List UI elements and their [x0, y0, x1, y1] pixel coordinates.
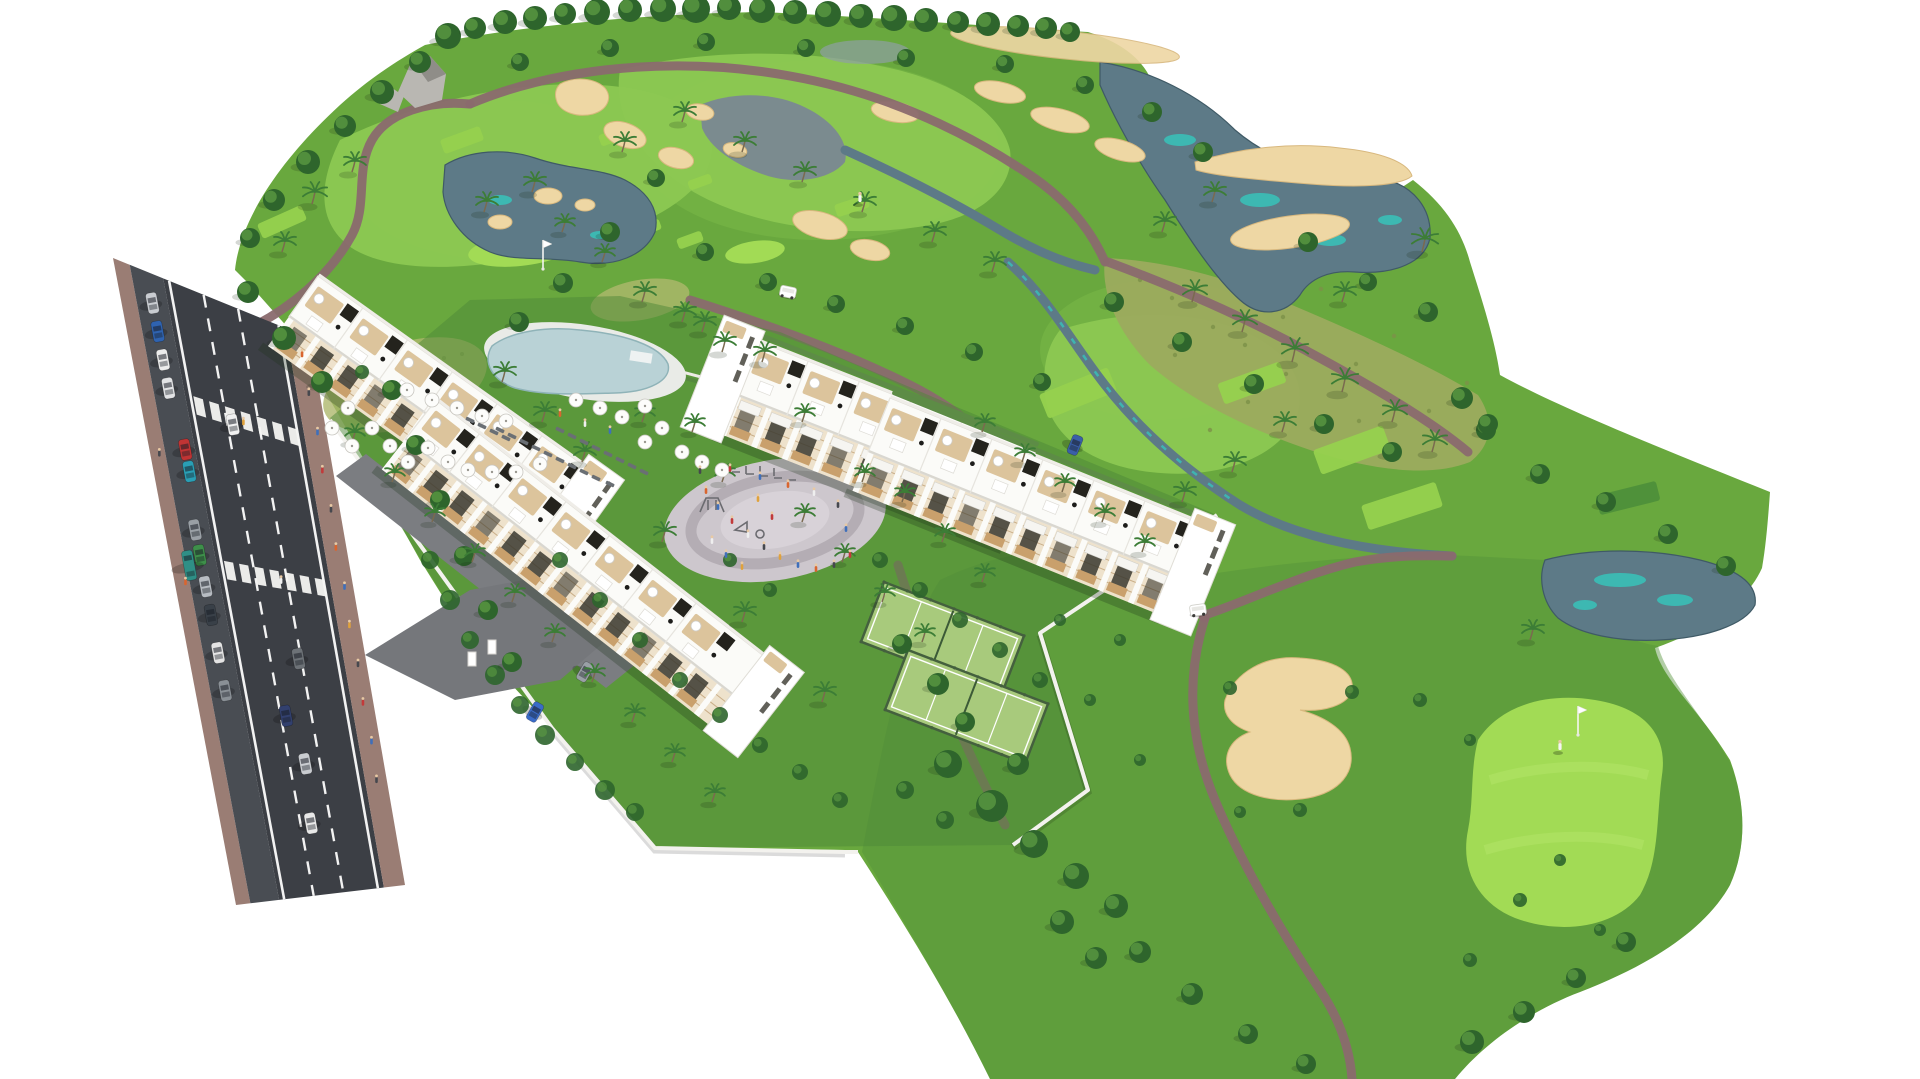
person — [307, 387, 310, 396]
parasol — [441, 455, 455, 469]
scrub-tuft — [1354, 362, 1358, 366]
bush — [912, 582, 928, 598]
putting-green-18 — [1466, 698, 1663, 927]
parasol — [475, 409, 489, 423]
person — [771, 511, 774, 520]
scrub-tuft — [1208, 428, 1212, 432]
parasol — [499, 414, 513, 428]
person — [158, 448, 161, 457]
person — [375, 775, 378, 784]
parasol — [325, 421, 339, 435]
bush — [592, 592, 608, 608]
person — [184, 577, 187, 586]
bush — [752, 737, 768, 753]
bush — [355, 365, 369, 379]
person — [717, 501, 720, 510]
bush — [832, 792, 848, 808]
bush — [992, 642, 1008, 658]
gate-pillar — [488, 640, 496, 654]
person — [343, 581, 346, 590]
person — [280, 575, 283, 584]
bush — [440, 590, 460, 610]
parasol — [383, 439, 397, 453]
round-tree — [549, 3, 576, 25]
round-tree — [875, 5, 907, 31]
round-tree — [909, 8, 938, 32]
bush — [552, 552, 568, 568]
person — [334, 542, 337, 551]
parasol — [485, 465, 499, 479]
person — [779, 551, 782, 560]
person — [759, 471, 762, 480]
person — [330, 504, 333, 513]
parasol — [400, 383, 414, 397]
person — [763, 541, 766, 550]
bush — [1032, 672, 1048, 688]
round-tree — [809, 1, 841, 27]
person — [711, 535, 714, 544]
person — [316, 427, 319, 436]
person — [357, 659, 360, 668]
person — [705, 485, 708, 494]
person — [833, 559, 836, 568]
bush — [872, 552, 888, 568]
bush — [672, 672, 688, 688]
bush — [763, 583, 777, 597]
bush — [632, 632, 648, 648]
person — [370, 736, 373, 745]
parasol — [675, 445, 689, 459]
round-tree — [613, 0, 642, 22]
parasol — [425, 393, 439, 407]
person — [731, 515, 734, 524]
person — [559, 408, 562, 417]
bush — [1054, 614, 1066, 626]
bush — [1114, 634, 1126, 646]
bush — [1463, 953, 1477, 967]
round-tree — [778, 0, 807, 24]
person — [813, 487, 816, 496]
person — [797, 559, 800, 568]
scrub-tuft — [1465, 381, 1469, 385]
scrub-tuft — [1392, 334, 1396, 338]
person — [729, 463, 732, 472]
parasol — [341, 401, 355, 415]
person — [242, 417, 245, 426]
parasol — [593, 401, 607, 415]
person — [787, 479, 790, 488]
scrub-tuft — [1319, 287, 1323, 291]
bush — [1223, 681, 1237, 695]
bush — [1554, 854, 1566, 866]
parasol — [615, 410, 629, 424]
parasol — [715, 463, 729, 477]
bush — [1134, 754, 1146, 766]
scrub-tuft — [1170, 296, 1174, 300]
parasol — [421, 441, 435, 455]
person — [837, 499, 840, 508]
bush — [1464, 734, 1476, 746]
round-tree — [844, 4, 873, 28]
person — [699, 465, 702, 474]
scrub-tuft — [1281, 315, 1285, 319]
person — [815, 563, 818, 572]
scrub-tuft — [1211, 325, 1215, 329]
bush — [936, 811, 954, 829]
parasol — [638, 435, 652, 449]
scrub-tuft — [1243, 343, 1247, 347]
person — [725, 549, 728, 558]
parasol — [695, 455, 709, 469]
round-tree — [971, 12, 1000, 36]
round-tree — [1002, 15, 1029, 37]
bush — [1293, 803, 1307, 817]
parasol — [345, 439, 359, 453]
bush — [595, 780, 615, 800]
bush — [952, 612, 968, 628]
bush — [535, 725, 555, 745]
person — [845, 523, 848, 532]
person — [321, 465, 324, 474]
person — [301, 349, 304, 358]
bush — [1084, 694, 1096, 706]
person — [849, 549, 852, 558]
round-tree — [236, 228, 261, 248]
person — [747, 529, 750, 538]
round-tree — [459, 17, 486, 39]
architectural-render-canvas — [0, 0, 1920, 1079]
parasol — [655, 421, 669, 435]
bush — [1234, 806, 1246, 818]
gate-pillar — [468, 652, 476, 666]
bush — [421, 551, 439, 569]
parasol — [401, 455, 415, 469]
person — [757, 493, 760, 502]
bush — [566, 753, 584, 771]
parasol — [509, 465, 523, 479]
round-tree — [488, 10, 517, 34]
bush — [1345, 685, 1359, 699]
bush — [1594, 924, 1606, 936]
person — [362, 697, 365, 706]
parasol — [461, 463, 475, 477]
bush — [1513, 893, 1527, 907]
scrub-tuft — [1173, 353, 1177, 357]
bush — [896, 781, 914, 799]
round-tree — [578, 0, 610, 25]
round-tree — [518, 6, 547, 30]
person — [584, 418, 587, 427]
scrub-tuft — [1357, 419, 1361, 423]
scene-svg — [0, 0, 1920, 1079]
person — [741, 561, 744, 570]
parasol — [450, 401, 464, 415]
round-tree — [232, 281, 259, 303]
bush — [626, 803, 644, 821]
parasol — [365, 421, 379, 435]
bush — [511, 696, 529, 714]
parasol — [533, 457, 547, 471]
scrub-tuft — [1284, 372, 1288, 376]
bush — [792, 764, 808, 780]
scrub-tuft — [1427, 409, 1431, 413]
s-shaped-bunker — [1224, 658, 1352, 800]
bush — [461, 631, 479, 649]
person — [348, 620, 351, 629]
round-tree — [942, 11, 969, 33]
bush — [1413, 693, 1427, 707]
parasol — [638, 399, 652, 413]
scrub-tuft — [1246, 400, 1250, 404]
round-tree — [429, 23, 461, 49]
parasol — [569, 393, 583, 407]
bush — [712, 707, 728, 723]
person — [609, 425, 612, 434]
